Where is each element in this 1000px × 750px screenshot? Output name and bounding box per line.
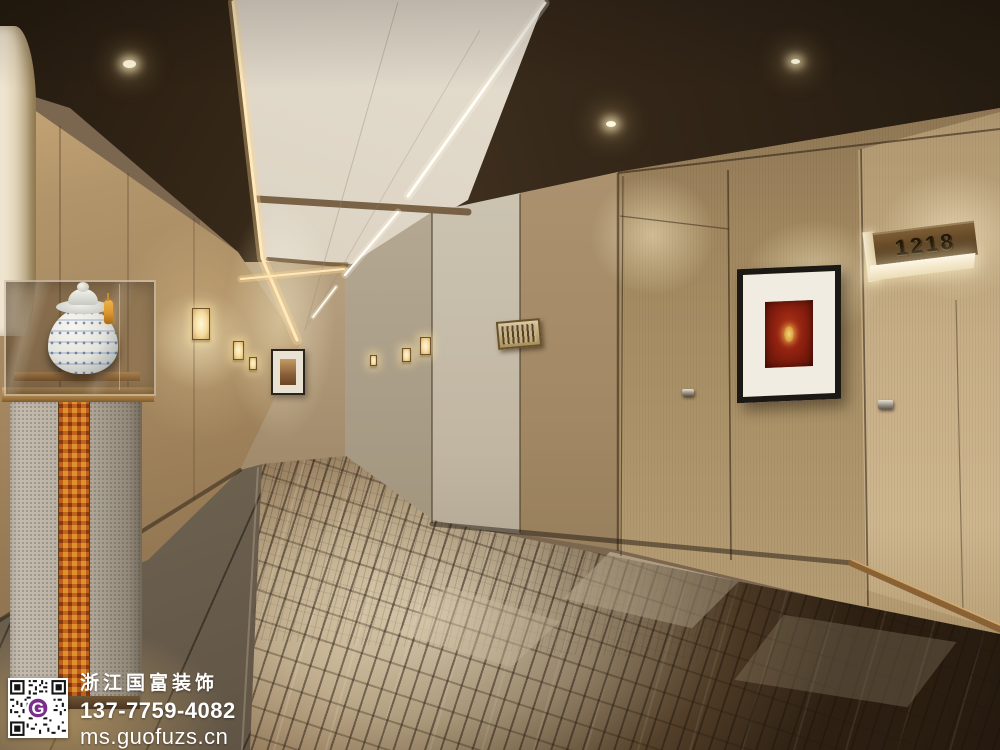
wall-sconce-light (420, 337, 431, 355)
downlight-spot (123, 60, 136, 68)
hotel-corridor-render: 1218 (0, 0, 1000, 750)
downlight-spot (791, 59, 800, 64)
downlight-spot (606, 121, 616, 127)
room-number-plate: 1218 (864, 212, 988, 298)
qr-logo-letter: G (32, 699, 45, 718)
door-handle (682, 389, 694, 396)
wall-sconce-light (192, 308, 210, 340)
corridor-end-artwork (271, 349, 305, 395)
room-number-plate-far (496, 318, 542, 350)
phone-number: 137-7759-4082 (80, 697, 236, 724)
end-artwork-picture (280, 359, 296, 385)
artwork-red-panel (765, 300, 813, 368)
plate-far-face (501, 324, 536, 345)
wall-sconce-light (370, 355, 377, 366)
company-name: 浙江国富装饰 (80, 670, 236, 697)
website-url: ms.guofuzs.cn (80, 724, 236, 750)
wall-sconce-light (402, 348, 411, 362)
porcelain-jar (42, 284, 126, 384)
jar-lid-knob (77, 282, 89, 292)
wall-sconce-light (233, 341, 244, 360)
company-watermark: G 浙江国富装饰 137-7759-4082 ms.guofuzs.cn (8, 648, 236, 750)
framed-red-artwork (737, 265, 841, 404)
wall-sconce-light (249, 357, 257, 370)
orange-tassel (104, 300, 113, 324)
watermark-text: 浙江国富装饰 137-7759-4082 ms.guofuzs.cn (80, 648, 236, 750)
qr-code: G (8, 678, 68, 738)
gold-seal-ornament (784, 326, 794, 342)
door-handle (878, 400, 893, 409)
